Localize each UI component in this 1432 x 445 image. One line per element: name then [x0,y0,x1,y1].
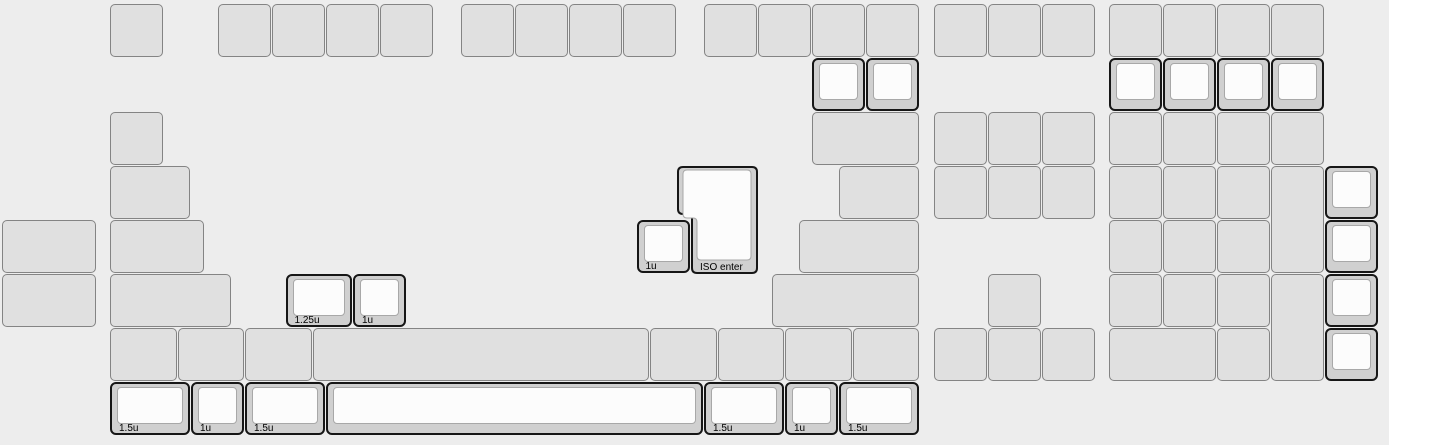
key[interactable] [1217,220,1270,273]
key[interactable] [110,274,231,327]
key[interactable] [1217,112,1270,165]
key[interactable] [1109,112,1162,165]
key[interactable] [110,166,190,219]
key[interactable] [650,328,717,381]
key[interactable] [758,4,811,57]
key[interactable] [1163,274,1216,327]
keycap-top [1332,225,1371,262]
key-1u[interactable]: 1u [191,382,244,435]
key[interactable] [988,328,1041,381]
key[interactable] [461,4,514,57]
selected-key[interactable] [1109,58,1162,111]
key[interactable] [1042,112,1095,165]
keycap-top [360,279,399,316]
keycap-top [711,387,777,424]
key[interactable] [934,112,987,165]
key[interactable] [2,274,96,327]
keycap-top [252,387,318,424]
key[interactable] [1271,112,1324,165]
key[interactable] [934,166,987,219]
key[interactable] [1163,112,1216,165]
key[interactable] [866,4,919,57]
key-size-label: 1u [200,423,211,434]
key[interactable] [623,4,676,57]
keycap-top [1224,63,1263,100]
key[interactable] [1163,166,1216,219]
key-size-label: 1.5u [119,423,138,434]
selected-key[interactable] [812,58,865,111]
key-size-label: ISO enter [700,262,743,273]
keycap-top [846,387,912,424]
key-size-label: 1.5u [848,423,867,434]
key[interactable] [839,166,919,219]
key[interactable] [110,112,163,165]
key[interactable] [1042,166,1095,219]
keycap-top [198,387,237,424]
selected-key[interactable] [1325,220,1378,273]
selected-key[interactable] [1217,58,1270,111]
key[interactable] [1163,4,1216,57]
selected-key[interactable] [1325,328,1378,381]
keycap-top [1332,333,1371,370]
selected-key[interactable] [326,382,703,435]
key-1u[interactable]: 1u [785,382,838,435]
key[interactable] [1217,166,1270,219]
key[interactable] [1217,328,1270,381]
key[interactable] [988,166,1041,219]
key[interactable] [988,274,1041,327]
key-size-label: 1.5u [254,423,273,434]
key[interactable] [178,328,245,381]
key[interactable] [1271,166,1324,273]
key-1u[interactable]: 1u [353,274,406,327]
key-1.5u[interactable]: 1.5u [245,382,325,435]
selected-key[interactable] [1163,58,1216,111]
keycap-top [819,63,858,100]
key[interactable] [812,112,919,165]
selected-key[interactable] [1325,274,1378,327]
key[interactable] [1109,4,1162,57]
key[interactable] [245,328,312,381]
key[interactable] [1163,220,1216,273]
iso-enter-key[interactable]: ISO enter [677,166,759,275]
key[interactable] [1109,220,1162,273]
key[interactable] [515,4,568,57]
selected-key[interactable] [1325,166,1378,219]
key-1.25u[interactable]: 1.25u [286,274,353,327]
key[interactable] [718,328,785,381]
key[interactable] [326,4,379,57]
keycap-top [1116,63,1155,100]
key[interactable] [1109,274,1162,327]
keycap-top [792,387,831,424]
key[interactable] [218,4,271,57]
keycap-top [1332,279,1371,316]
key[interactable] [1271,274,1324,381]
key-size-label: 1u [794,423,805,434]
key[interactable] [853,328,920,381]
key[interactable] [934,4,987,57]
key-size-label: 1u [646,261,657,272]
key[interactable] [1109,328,1216,381]
key[interactable] [1217,4,1270,57]
key[interactable] [1042,4,1095,57]
key-size-label: 1u [362,315,373,326]
key[interactable] [934,328,987,381]
key[interactable] [799,220,920,273]
key[interactable] [272,4,325,57]
keycap-top [333,387,696,424]
key[interactable] [812,4,865,57]
selected-key[interactable] [866,58,919,111]
key[interactable] [1109,166,1162,219]
key[interactable] [569,4,622,57]
key-1.5u[interactable]: 1.5u [839,382,919,435]
key[interactable] [1271,4,1324,57]
key[interactable] [313,328,650,381]
keycap-top [1278,63,1317,100]
key[interactable] [772,274,920,327]
key[interactable] [2,220,96,273]
key-size-label: 1.5u [713,423,732,434]
key[interactable] [1042,328,1095,381]
selected-key[interactable] [1271,58,1324,111]
key[interactable] [380,4,433,57]
keycap-top [1332,171,1371,208]
keycap-top [117,387,183,424]
key[interactable] [110,4,163,57]
key[interactable] [785,328,852,381]
key[interactable] [988,4,1041,57]
key[interactable] [988,112,1041,165]
keycap-top [1170,63,1209,100]
keyboard-layout-canvas: 1u1.25u1u1.5u1u1.5u1.5u1u1.5uISO enter [0,0,1389,445]
key[interactable] [1217,274,1270,327]
keycap-top [873,63,912,100]
key[interactable] [704,4,757,57]
key-1.5u[interactable]: 1.5u [704,382,784,435]
key[interactable] [110,220,204,273]
key[interactable] [110,328,177,381]
keycap-top [293,279,346,316]
key-1.5u[interactable]: 1.5u [110,382,190,435]
key-size-label: 1.25u [295,315,320,326]
